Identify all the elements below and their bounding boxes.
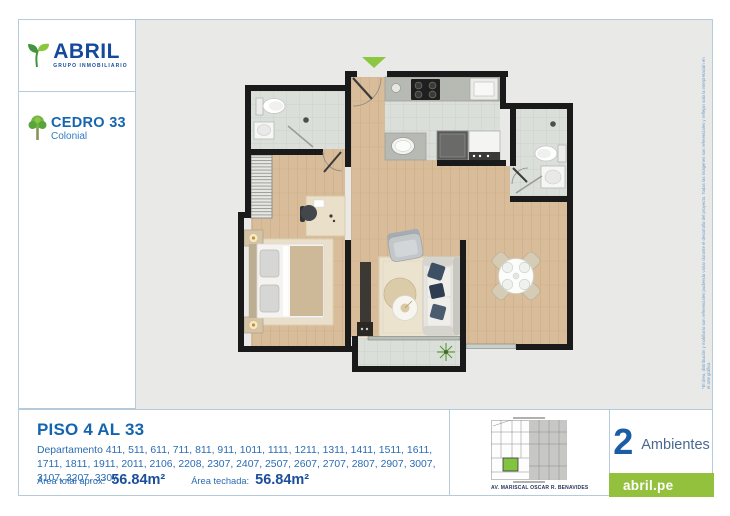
area-covered-label: Área techada: bbox=[191, 476, 249, 486]
disclaimer-text: *El área, distribución y mobiliario son … bbox=[701, 57, 712, 389]
brand-column: ABRIL GRUPO INMOBILIARIO CEDRO 33 Coloni… bbox=[18, 19, 136, 409]
area-covered-value: 56.84m² bbox=[255, 472, 309, 488]
area-total-label: Área total aprox: bbox=[37, 476, 105, 486]
summary-column: 2 Ambientes abril.pe bbox=[609, 410, 714, 495]
project-name: CEDRO 33 bbox=[51, 116, 126, 130]
abril-logo: ABRIL GRUPO INMOBILIARIO bbox=[19, 20, 135, 92]
abril-leaf-icon bbox=[26, 43, 50, 69]
map-caption: AV. MARISCAL OSCAR R. BENAVIDES bbox=[491, 485, 567, 491]
area-total-value: 56.84m² bbox=[111, 472, 165, 488]
map-street-label-bottom bbox=[513, 481, 545, 483]
areas-row: Área total aprox: 56.84m² Área techada: … bbox=[37, 472, 309, 488]
project-lot-highlight bbox=[503, 458, 518, 471]
brand-tagline: GRUPO INMOBILIARIO bbox=[53, 63, 128, 69]
rooms-label: Ambientes bbox=[641, 437, 710, 453]
details-panel: PISO 4 AL 33 Departamento 411, 511, 611,… bbox=[18, 409, 713, 496]
rooms-count: 2 Ambientes bbox=[609, 410, 714, 473]
website-box: abril.pe bbox=[609, 473, 714, 497]
project-logo: CEDRO 33 Colonial bbox=[19, 92, 135, 142]
rooms-value: 2 bbox=[613, 424, 633, 460]
floor-range-title: PISO 4 AL 33 bbox=[37, 420, 442, 440]
cedro-tree-icon bbox=[28, 114, 47, 142]
website-link[interactable]: abril.pe bbox=[609, 478, 673, 493]
flyer-page: *El área, distribución y mobiliario son … bbox=[0, 0, 730, 516]
project-variant: Colonial bbox=[51, 131, 126, 142]
brand-name: ABRIL bbox=[53, 42, 128, 62]
map-section: AV. MARISCAL OSCAR R. BENAVIDES bbox=[449, 410, 609, 495]
map-street-label-top bbox=[513, 417, 545, 419]
location-map bbox=[491, 420, 567, 480]
